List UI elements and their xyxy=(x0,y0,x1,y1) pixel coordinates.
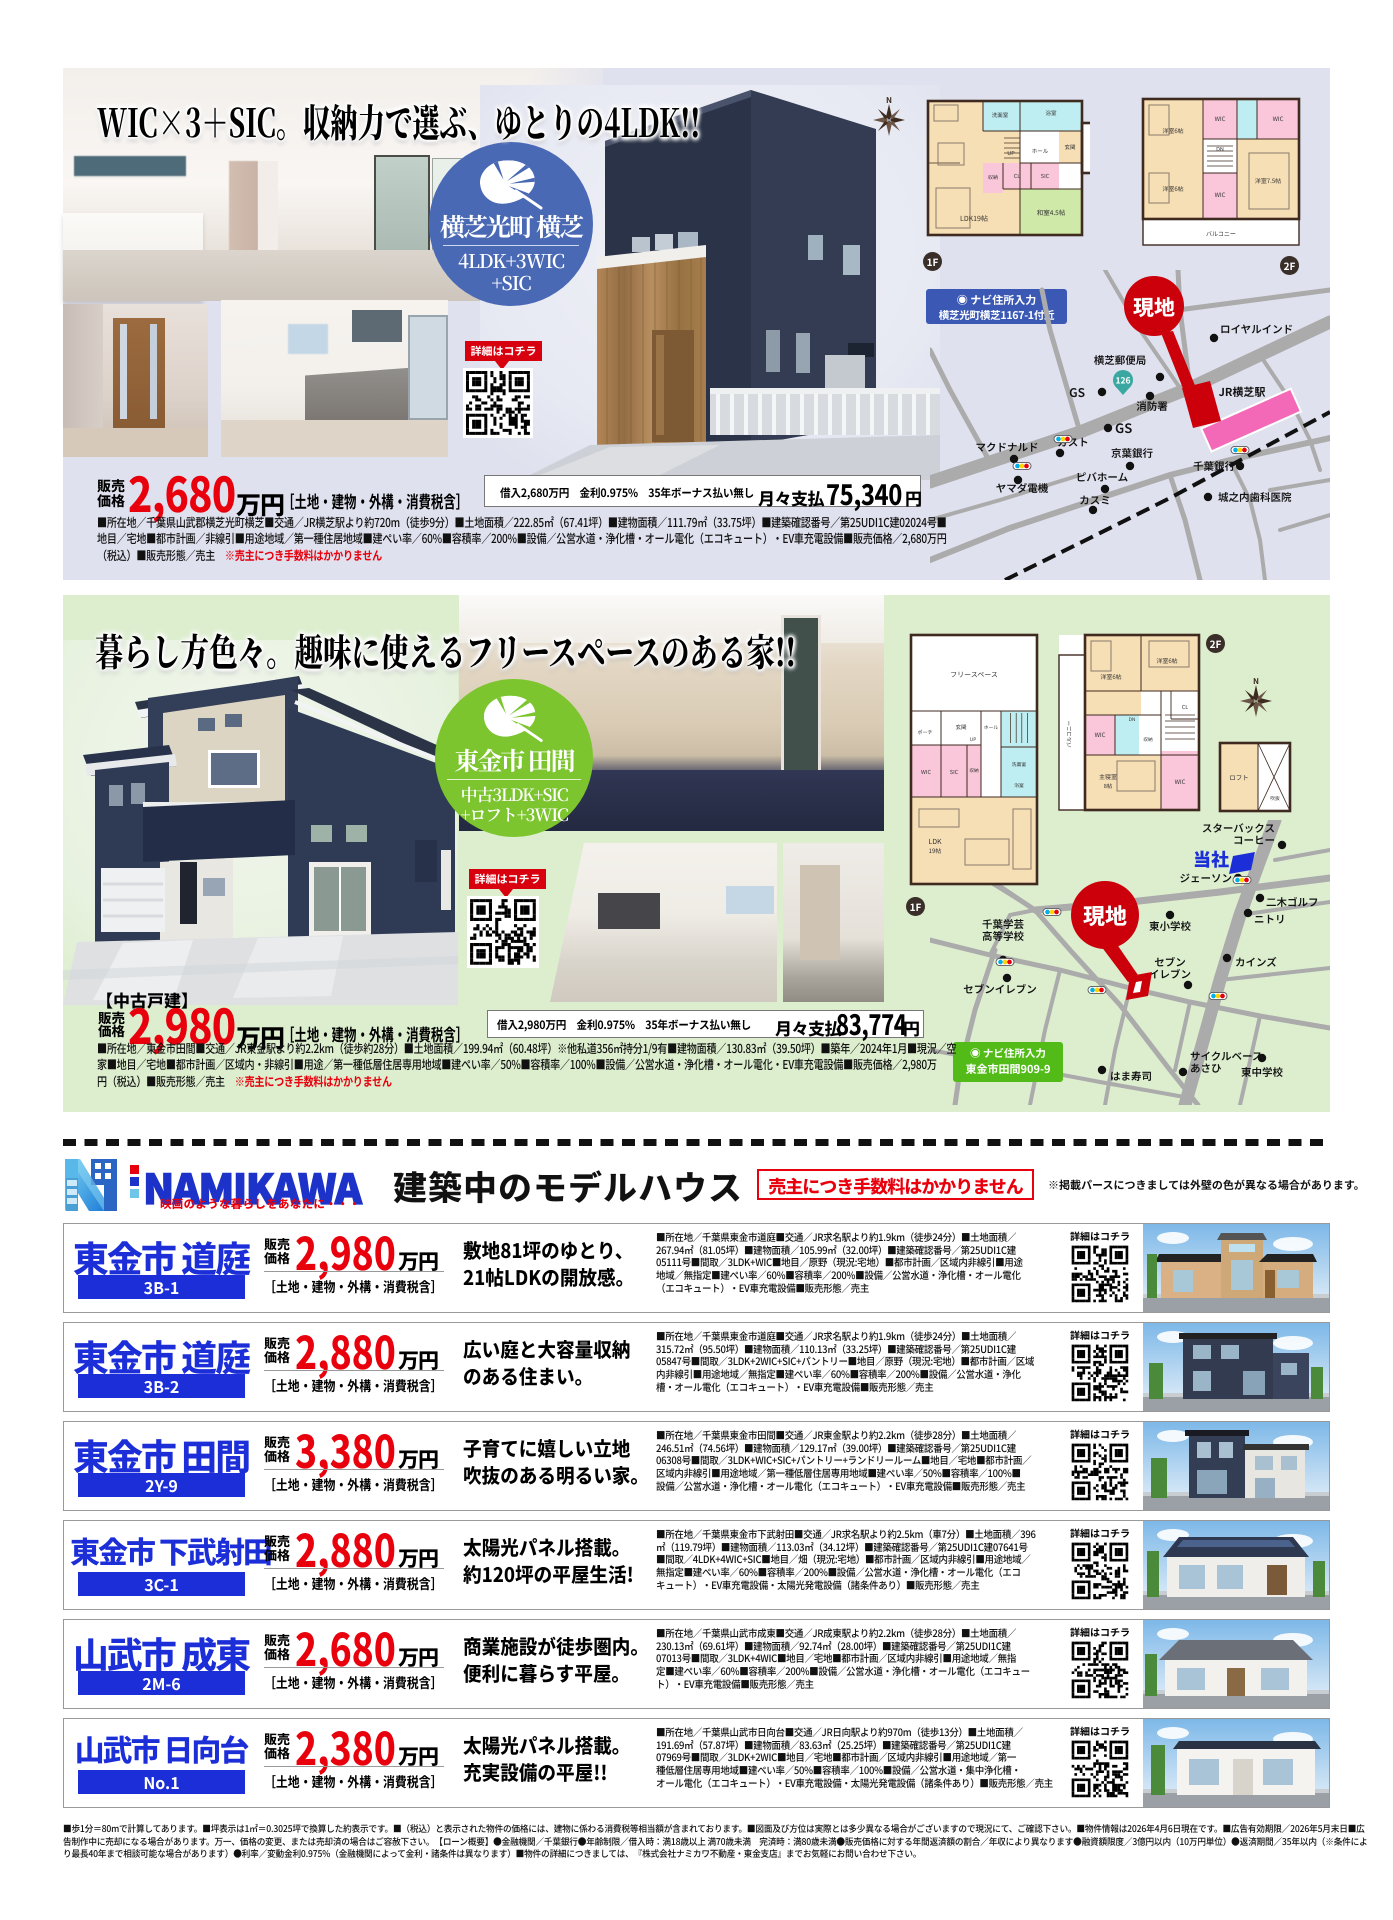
svg-text:東中学校: 東中学校 xyxy=(1241,1065,1283,1080)
svg-text:洗面室: 洗面室 xyxy=(1012,761,1027,768)
svg-text:主寝室: 主寝室 xyxy=(1099,772,1117,781)
svg-text:バルコニー: バルコニー xyxy=(1065,720,1073,747)
svg-text:洋室6帖: 洋室6帖 xyxy=(1156,656,1177,665)
svg-text:洗面室: 洗面室 xyxy=(992,111,1009,119)
svg-text:洋室6帖: 洋室6帖 xyxy=(1162,126,1183,135)
svg-text:横芝郵便局: 横芝郵便局 xyxy=(1094,353,1147,368)
svg-text:CL: CL xyxy=(1014,172,1021,180)
svg-text:フリースペース: フリースペース xyxy=(950,670,998,680)
svg-text:あさひ: あさひ xyxy=(1190,1061,1222,1076)
svg-text:東小学校: 東小学校 xyxy=(1149,919,1191,934)
svg-text:カインズ: カインズ xyxy=(1235,955,1277,970)
svg-text:二木ゴルフ: 二木ゴルフ xyxy=(1266,895,1319,910)
svg-text:マクドナルド: マクドナルド xyxy=(976,440,1039,455)
svg-text:UP: UP xyxy=(1007,149,1015,157)
svg-text:WIC: WIC xyxy=(1175,777,1186,786)
svg-text:WIC: WIC xyxy=(1273,114,1284,123)
svg-text:ヤマダ電機: ヤマダ電機 xyxy=(996,481,1049,496)
svg-text:ロイヤルインド: ロイヤルインド xyxy=(1220,322,1293,337)
svg-text:収納: 収納 xyxy=(988,174,998,181)
svg-text:消防署: 消防署 xyxy=(1136,399,1168,414)
svg-text:高等学校: 高等学校 xyxy=(982,929,1024,944)
svg-text:浴室: 浴室 xyxy=(1014,782,1024,789)
svg-text:ポーチ: ポーチ xyxy=(917,729,932,736)
svg-text:ジェーソン: ジェーソン xyxy=(1180,871,1233,886)
svg-text:コーヒー: コーヒー xyxy=(1233,833,1275,848)
svg-text:ホール: ホール xyxy=(984,724,999,731)
svg-text:SIC: SIC xyxy=(950,768,959,776)
svg-text:126: 126 xyxy=(1115,375,1130,387)
svg-text:ロフト: ロフト xyxy=(1229,772,1249,782)
svg-text:吹抜: 吹抜 xyxy=(1270,795,1280,802)
svg-text:CL: CL xyxy=(1182,703,1189,711)
svg-text:DN: DN xyxy=(1129,716,1136,723)
svg-text:城之内歯科医院: 城之内歯科医院 xyxy=(1218,490,1292,505)
svg-text:現地: 現地 xyxy=(1133,292,1175,322)
svg-text:DN: DN xyxy=(1216,145,1224,153)
svg-text:ピバホーム: ピバホーム xyxy=(1076,470,1128,485)
svg-text:WIC: WIC xyxy=(921,768,931,776)
svg-text:和室4.5帖: 和室4.5帖 xyxy=(1037,207,1066,217)
svg-text:GS: GS xyxy=(1069,384,1085,401)
svg-text:浴室: 浴室 xyxy=(1045,109,1057,117)
svg-text:SIC: SIC xyxy=(1041,172,1050,180)
svg-text:玄関: 玄関 xyxy=(955,723,967,731)
svg-text:洋室7.5帖: 洋室7.5帖 xyxy=(1255,176,1281,185)
svg-text:バルコニー: バルコニー xyxy=(1206,229,1236,238)
svg-text:8帖: 8帖 xyxy=(1104,782,1113,790)
svg-text:千葉銀行: 千葉銀行 xyxy=(1193,459,1235,474)
svg-text:京葉銀行: 京葉銀行 xyxy=(1111,446,1153,461)
svg-text:WIC: WIC xyxy=(1095,730,1106,739)
svg-text:WIC: WIC xyxy=(1215,190,1226,199)
svg-text:収納: 収納 xyxy=(969,768,979,774)
svg-text:セブンイレブン: セブンイレブン xyxy=(963,982,1037,997)
svg-text:収納: 収納 xyxy=(1143,737,1153,743)
svg-text:洋室6帖: 洋室6帖 xyxy=(1162,184,1183,193)
svg-text:LDK19帖: LDK19帖 xyxy=(960,214,988,224)
svg-text:GS: GS xyxy=(1115,418,1132,437)
svg-text:ホール: ホール xyxy=(1032,147,1049,155)
svg-text:WIC: WIC xyxy=(1215,114,1226,123)
svg-text:現地: 現地 xyxy=(1083,899,1127,931)
svg-text:JR横芝駅: JR横芝駅 xyxy=(1219,384,1266,400)
svg-text:19帖: 19帖 xyxy=(929,846,942,855)
svg-text:UP: UP xyxy=(970,736,977,743)
svg-text:イレブン: イレブン xyxy=(1149,967,1191,982)
svg-text:洋室6帖: 洋室6帖 xyxy=(1100,672,1121,681)
svg-text:当社: 当社 xyxy=(1193,846,1229,872)
svg-text:玄関: 玄関 xyxy=(1064,143,1076,151)
svg-text:ニトリ: ニトリ xyxy=(1254,912,1286,927)
svg-text:カスミ: カスミ xyxy=(1079,493,1111,508)
